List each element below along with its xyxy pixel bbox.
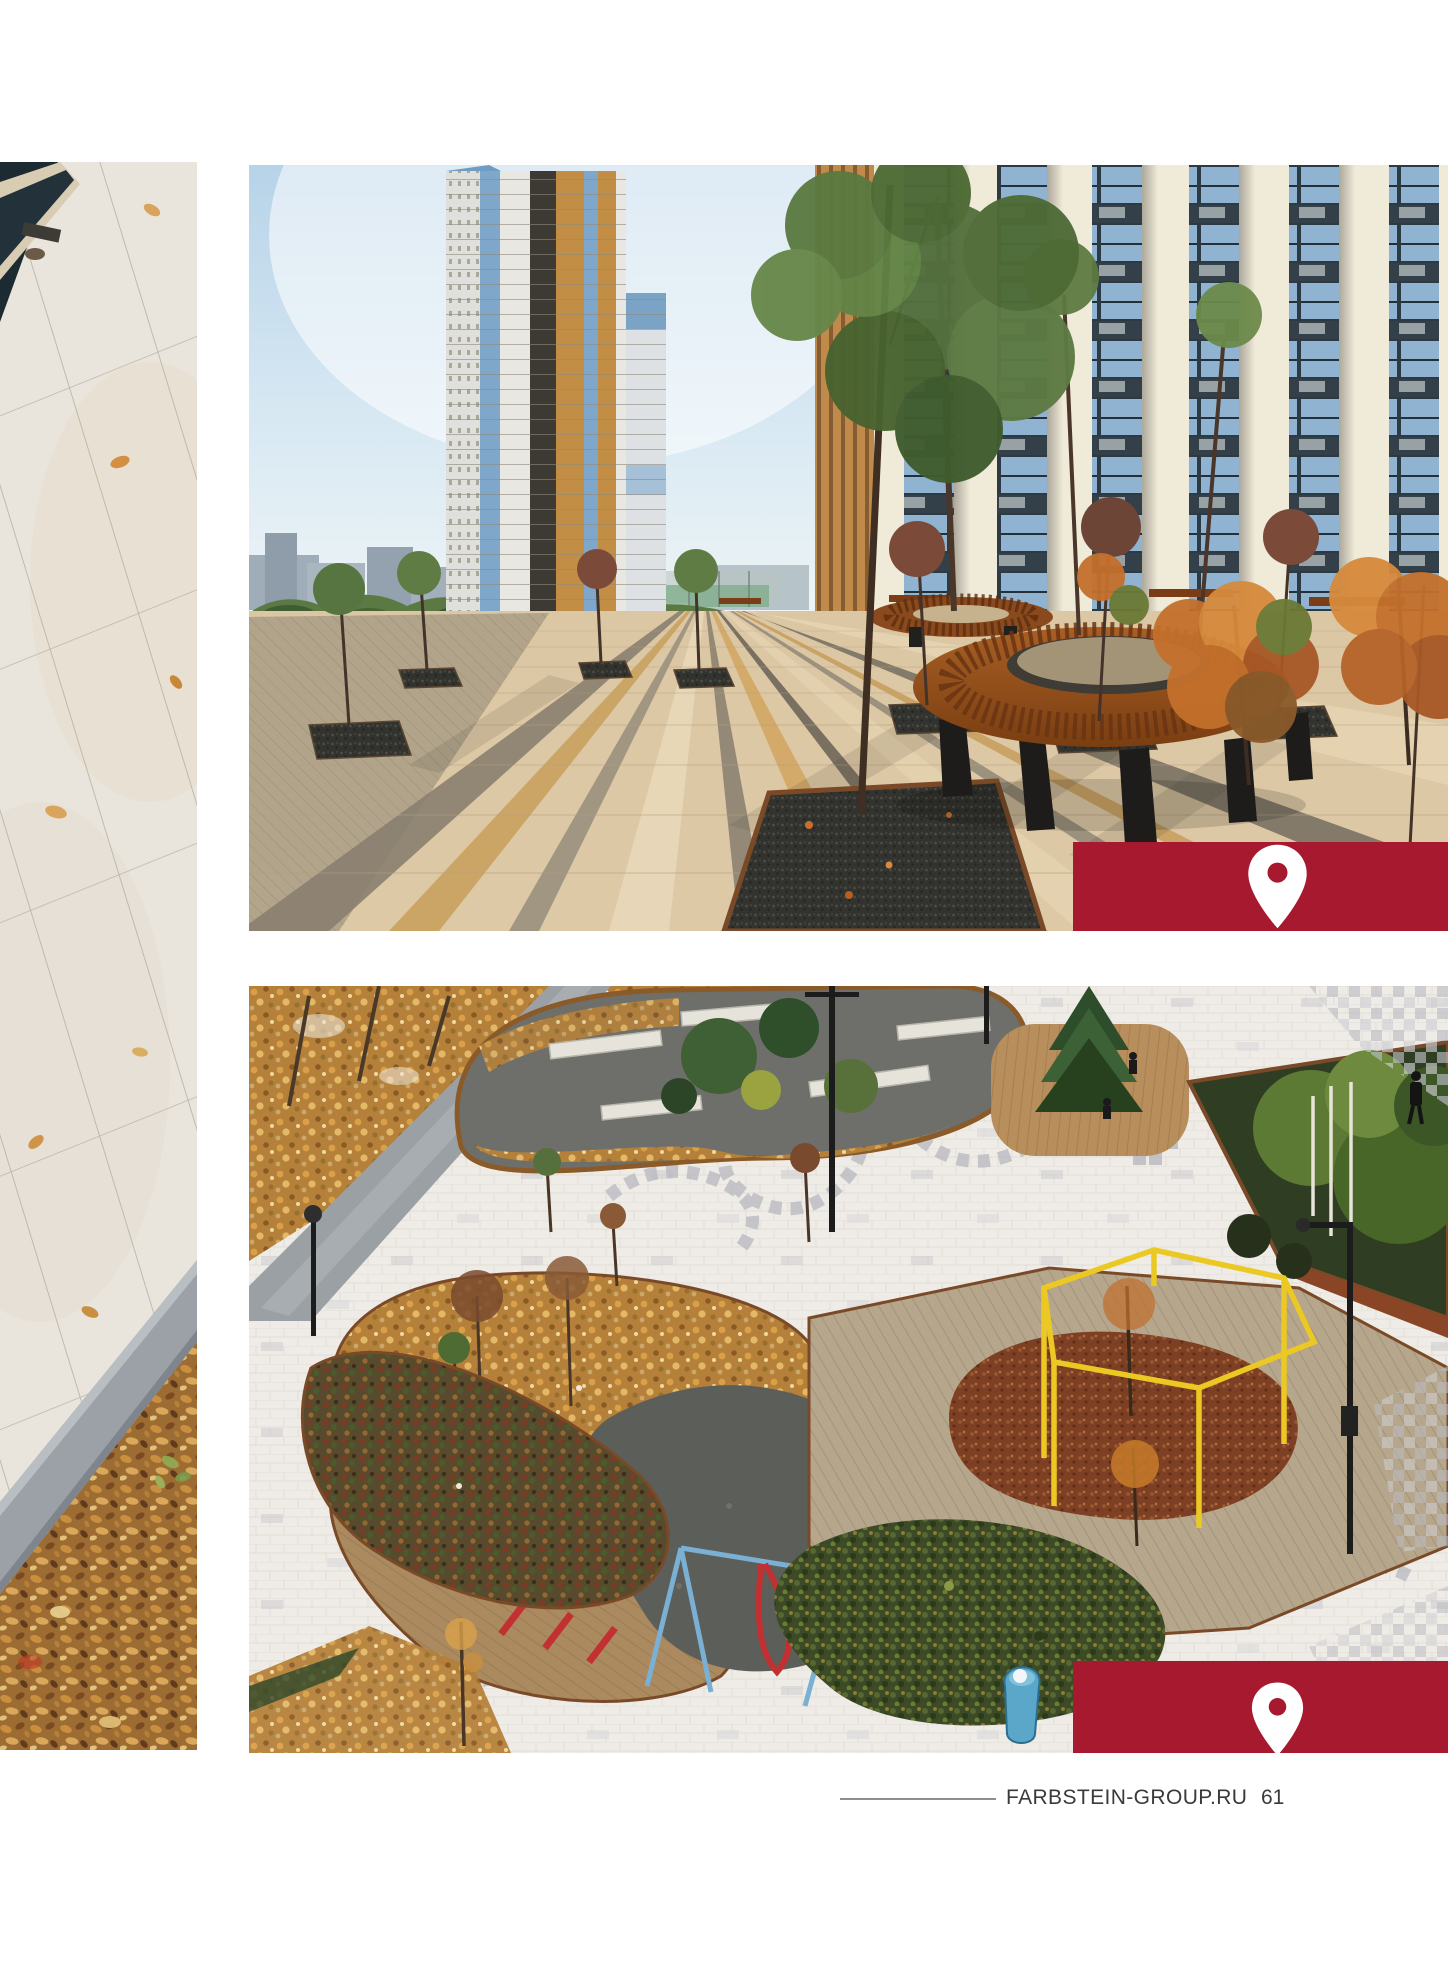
left-photo-strip: [0, 162, 197, 1750]
ufa-plaza-illustration: [249, 165, 1448, 931]
kazan-boulevard-illustration: [249, 986, 1448, 1753]
location-pin-icon: [1090, 842, 1448, 931]
caption-kazan: Казань. Бульвар «Белые цветы»: [1073, 1661, 1448, 1753]
location-pin-icon: [1090, 1680, 1448, 1753]
waste-bin: [1004, 1667, 1039, 1743]
page-number: 61: [1261, 1786, 1284, 1810]
photo-kazan-boulevard: Казань. Бульвар «Белые цветы»: [249, 986, 1448, 1753]
photo-ufa-plaza: Уфа. ЖК «Умный дом»: [249, 165, 1448, 931]
left-strip-illustration: [0, 162, 197, 1750]
page-footer: FARBSTEIN-GROUP.RU 61: [0, 1786, 1448, 1816]
magazine-page: Уфа. ЖК «Умный дом»: [0, 0, 1448, 1974]
footer-website: FARBSTEIN-GROUP.RU: [1006, 1786, 1247, 1810]
footer-rule: [840, 1798, 996, 1800]
caption-ufa: Уфа. ЖК «Умный дом»: [1073, 842, 1448, 931]
